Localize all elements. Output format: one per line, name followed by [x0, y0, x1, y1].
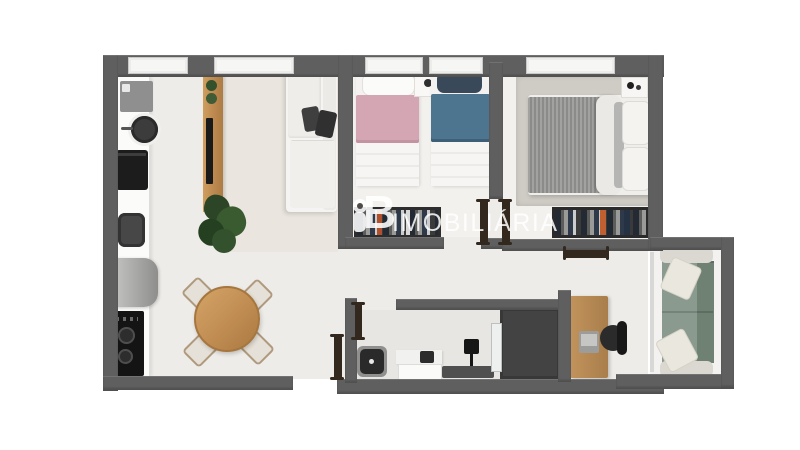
nightstand-decor: [627, 82, 634, 89]
balcony-door-track: [650, 252, 654, 372]
bottom-wall-left: [103, 376, 293, 390]
sheet-folds: [431, 142, 490, 186]
sofa-seat-cushions: [290, 140, 335, 208]
entrance-door: [334, 335, 342, 379]
kitchen-faucet: [121, 127, 133, 130]
plant-leaf: [212, 229, 236, 253]
washer-panel: [122, 84, 130, 92]
kitchen-window: [128, 57, 188, 74]
office-divider-wall: [558, 290, 571, 382]
dining-table: [194, 286, 260, 352]
fridge: [113, 258, 158, 307]
single-bed-pink: [356, 68, 419, 186]
master-bed: [528, 95, 654, 195]
bottom-wall-main: [337, 379, 664, 394]
sheet-folds: [356, 143, 419, 186]
clothes-accent-white: [406, 210, 410, 235]
clothes-accent-navy: [624, 210, 630, 235]
single-bed-blue: [431, 68, 490, 186]
right-wall: [648, 55, 663, 251]
tv-panel-plant2-icon: [206, 93, 217, 104]
floor-plant: [198, 193, 248, 255]
bathroom-top-wall: [396, 299, 564, 310]
hanging-clothes: [357, 210, 438, 235]
nightstand-decor-small: [636, 85, 641, 90]
shower-glass-partition: [491, 323, 502, 372]
toilet-button: [369, 359, 374, 364]
balcony-sofa-seam: [662, 311, 713, 313]
bedroom1-door: [480, 200, 488, 244]
laundry-tank: [118, 213, 145, 247]
balcony-right-wall: [721, 237, 734, 388]
blue-duvet: [431, 94, 490, 142]
bath-bench: [442, 366, 494, 378]
living-bedroom1-divider-wall: [338, 55, 353, 249]
striped-duvet: [528, 97, 602, 193]
kitchen-sink: [131, 116, 158, 143]
vanity-cabinet: [398, 364, 442, 380]
vanity-counter: [396, 350, 442, 364]
laptop-screen: [581, 334, 597, 346]
vanity-basin: [420, 351, 434, 363]
balcony-bottom-wall: [616, 374, 734, 389]
tv-panel-plant-icon: [206, 80, 217, 91]
bedroom1-window-a: [365, 57, 423, 74]
living-window: [214, 57, 294, 74]
nightstand-master: [621, 77, 648, 98]
burner-small: [118, 349, 133, 364]
cooktop-knobs: [116, 317, 138, 321]
left-wall: [103, 55, 118, 391]
wardrobe-bedroom1: [354, 207, 441, 238]
oven: [116, 150, 148, 190]
floor-plan: B IMOBILIÁRIA: [0, 0, 800, 450]
tv-screen: [206, 118, 213, 184]
burner-large: [118, 327, 135, 344]
bedroom1-window-b: [429, 57, 483, 74]
bedroom1-master-divider-wall: [489, 62, 503, 199]
washing-machine: [120, 81, 153, 112]
laptop: [579, 331, 599, 353]
toilet: [357, 346, 387, 377]
pink-duvet: [356, 95, 419, 143]
clothes-accent-red: [377, 210, 382, 235]
bathroom-door: [355, 303, 362, 339]
bedroom1-bottom-wall: [345, 237, 444, 249]
master-pillow-top: [622, 101, 650, 145]
shower-floor: [500, 308, 560, 379]
clothes-accent-orange: [600, 210, 606, 235]
master-pillow-bottom: [622, 147, 650, 191]
wardrobe-master: [552, 207, 649, 238]
office-hall-door: [564, 250, 608, 258]
master-door: [502, 200, 510, 244]
master-window: [526, 57, 615, 74]
office-chair-back: [617, 321, 627, 355]
oven-handle: [118, 153, 146, 156]
shower-column: [464, 339, 479, 354]
l-sofa: [286, 71, 337, 212]
